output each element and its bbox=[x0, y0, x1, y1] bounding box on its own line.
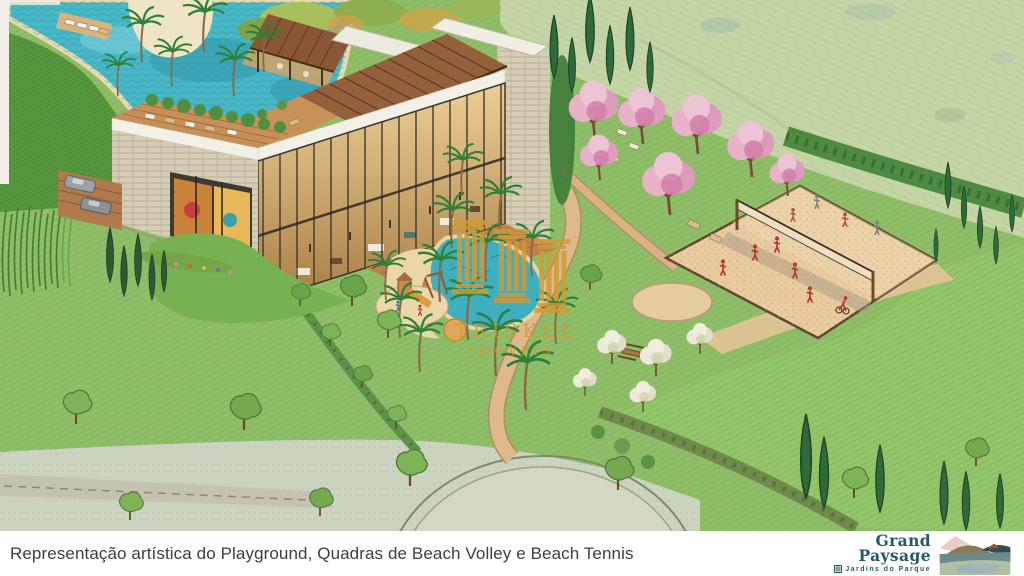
brand-name-line2: Paysage bbox=[834, 549, 931, 564]
brand-tagline: Jardins do Parque bbox=[845, 566, 931, 573]
caption: Representação artística do Playground, Q… bbox=[10, 544, 834, 564]
artistic-rendering bbox=[0, 0, 1024, 531]
brand-landscape-art bbox=[938, 533, 1012, 575]
brand-mark-icon bbox=[834, 565, 842, 573]
caption-bar: Representação artística do Playground, Q… bbox=[0, 531, 1024, 576]
brand-logo: Grand Paysage Jardins do Parque bbox=[834, 533, 1012, 575]
slide: TRISKEL IMÓVEIS Representação artística … bbox=[0, 0, 1024, 576]
